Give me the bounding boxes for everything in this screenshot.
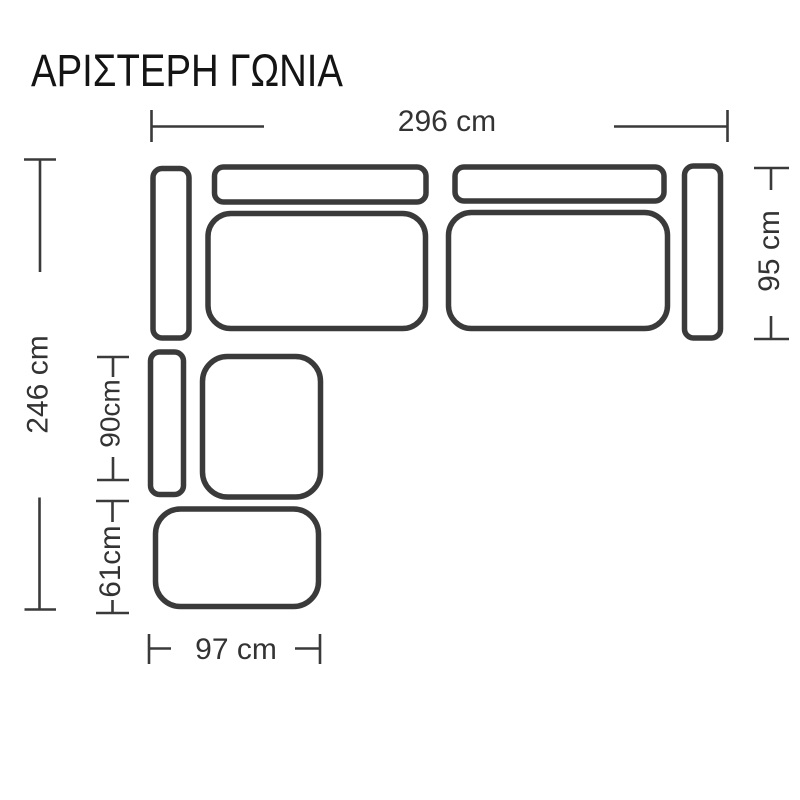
svg-text:ΑΡΙΣΤΕΡΗ ΓΩΝΙΑ: ΑΡΙΣΤΕΡΗ ΓΩΝΙΑ: [31, 45, 343, 96]
svg-text:90cm: 90cm: [95, 379, 126, 447]
svg-text:61cm: 61cm: [94, 525, 127, 597]
svg-text:296 cm: 296 cm: [398, 105, 496, 138]
svg-text:97 cm: 97 cm: [195, 633, 277, 666]
svg-text:246 cm: 246 cm: [22, 335, 55, 433]
svg-text:95 cm: 95 cm: [753, 210, 786, 292]
